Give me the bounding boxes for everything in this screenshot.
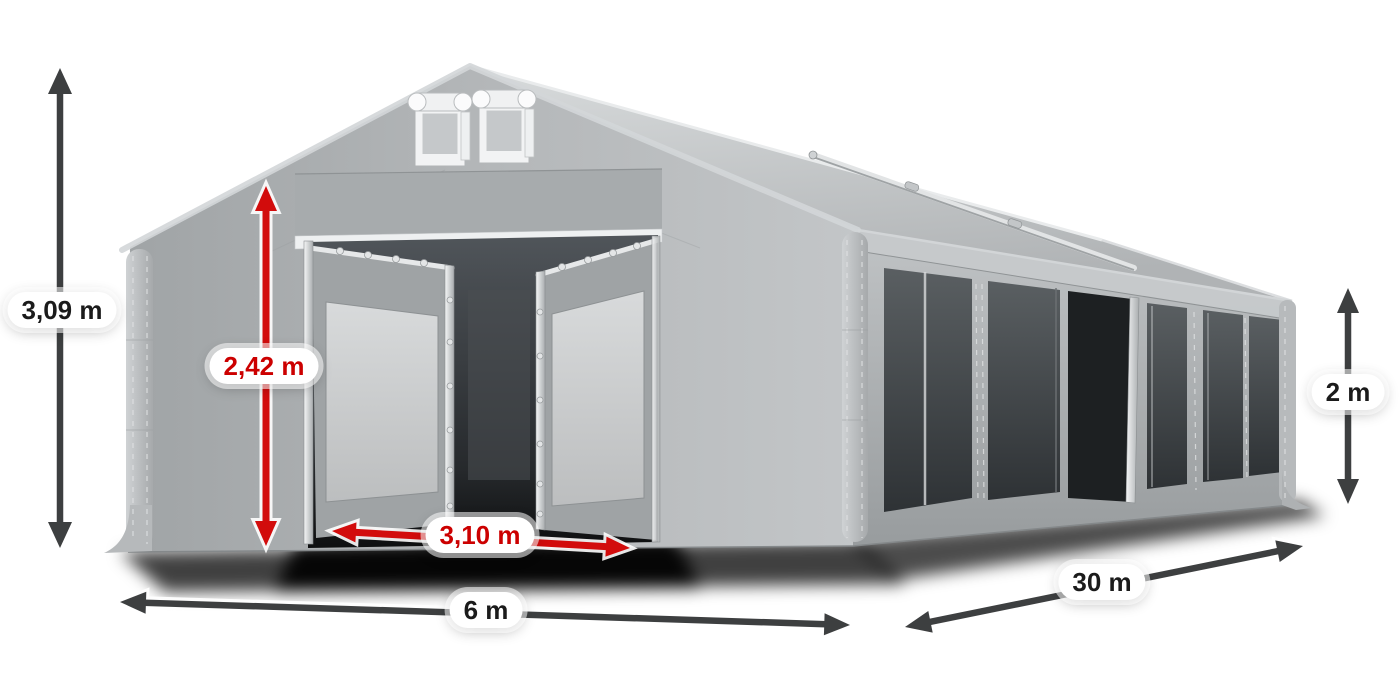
side-window: [1203, 310, 1243, 482]
tent-dimension-diagram: 3,09 m 2,42 m 3,10 m 6 m 30 m 2 m: [0, 0, 1400, 700]
dimension-label-entrance-width: 3,10 m: [426, 517, 535, 553]
dimension-label-tent-length: 30 m: [1058, 564, 1145, 600]
door-panel-left: [310, 248, 454, 539]
side-window: [1147, 303, 1187, 489]
tent-illustration: [0, 0, 1400, 700]
frame-pole: [445, 265, 454, 524]
dimension-label-total-height: 3,09 m: [8, 292, 117, 328]
side-wall: [853, 231, 1292, 546]
gable-vent: [472, 90, 536, 159]
frame-pole: [304, 241, 313, 544]
door-window: [326, 302, 438, 502]
door-panel-right: [536, 240, 658, 540]
gable-vent: [408, 93, 472, 162]
dimension-label-entrance-height: 2,42 m: [210, 348, 319, 384]
door-window: [552, 291, 644, 506]
dimension-label-tent-width: 6 m: [450, 592, 523, 628]
side-window: [884, 268, 972, 512]
side-opening: [1068, 291, 1132, 502]
frame-pole: [652, 236, 660, 542]
dimension-label-side-height: 2 m: [1312, 374, 1385, 410]
entrance-header-panel: [295, 169, 662, 236]
side-window: [1249, 316, 1283, 476]
entrance: [295, 169, 662, 548]
side-window: [988, 281, 1060, 500]
